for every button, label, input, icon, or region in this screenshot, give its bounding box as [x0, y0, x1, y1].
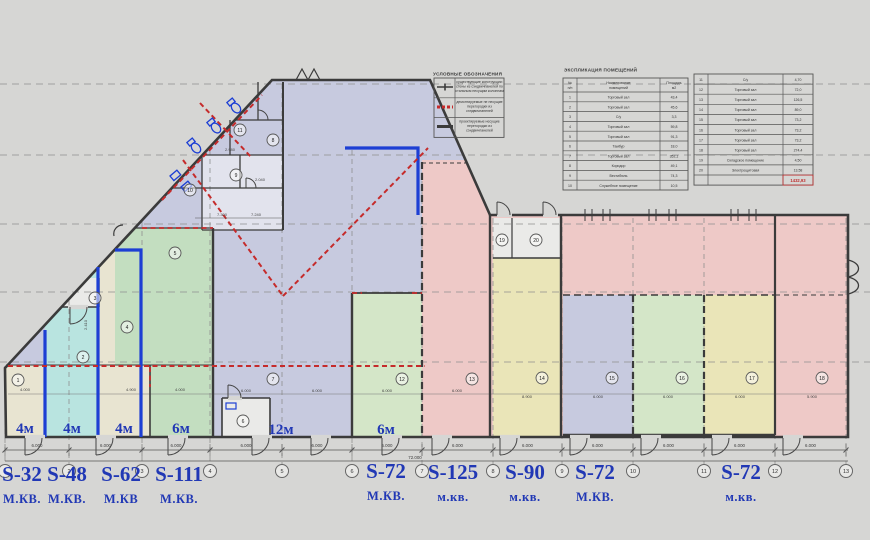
room-number: 12	[399, 377, 405, 383]
room-row-num: 3	[569, 115, 571, 119]
col-header-num: №	[568, 81, 572, 85]
interior-dimension: 6.000	[452, 388, 463, 393]
room-number: 6	[242, 419, 245, 425]
col-header-num: п/п	[568, 86, 573, 90]
room-row-area: 4,50	[795, 159, 802, 163]
room-row-area: 49,1	[671, 164, 678, 168]
bay-dimension: 6.000	[592, 443, 604, 448]
zone-16-green	[633, 295, 704, 435]
zone-13-pink	[422, 160, 493, 437]
room-number: 20	[533, 238, 539, 244]
legend-row-text: сэндвичпанелей	[466, 129, 493, 133]
bay-dimension: 6.000	[452, 443, 464, 448]
interior-dimension: 4.000	[175, 387, 186, 392]
interior-dimension: 6.000	[241, 388, 252, 393]
interior-dimension: 4.000	[20, 387, 31, 392]
room-number: 7	[272, 377, 275, 383]
grid-bubble-number: 8	[491, 469, 494, 475]
unit-area-units: М.КВ.	[576, 490, 614, 504]
col-header-name: помещений	[609, 86, 628, 90]
bay-dimension: 6.000	[241, 443, 253, 448]
interior-dimension: 7.300	[217, 212, 228, 217]
room-row-area: 73,2	[795, 118, 802, 122]
unit-height-label: 4м	[115, 421, 133, 437]
room-number: 11	[237, 128, 242, 134]
unit-area-label: S-48	[47, 462, 87, 486]
total-area: 1432,93	[790, 178, 806, 183]
room-row-area: 73,2	[795, 128, 802, 132]
room-row-area: 126,5	[794, 98, 803, 102]
room-number: 17	[749, 376, 755, 382]
bay-dimension: 6.000	[100, 443, 112, 448]
unit-height-label: 12м	[268, 422, 293, 438]
grid-bubble-number: 6	[350, 469, 353, 475]
room-number: 15	[609, 376, 615, 382]
room-row-name: Складское помещение	[727, 159, 764, 163]
room-number: 14	[539, 376, 545, 382]
room-row-num: 5	[569, 135, 571, 139]
room-number: 1	[17, 378, 20, 384]
room-row-name: Торговый зал	[608, 105, 630, 109]
overall-dimension: 72.000	[408, 455, 422, 460]
interior-dimension: 4.900	[126, 387, 137, 392]
grid-bubble-number: 11	[701, 469, 707, 475]
room-number: 19	[499, 238, 505, 244]
interior-dimension: 2.040	[255, 177, 266, 182]
legend-row-text: перегородки из	[467, 105, 492, 109]
unit-area-label: S-111	[155, 462, 203, 486]
room-row-name: Торговый зал	[735, 88, 757, 92]
room-row-name: Торговый зал	[735, 98, 757, 102]
room-row-num: 17	[699, 138, 703, 142]
room-row-num: 16	[699, 128, 703, 132]
room-cluster	[202, 155, 283, 230]
room-number: 5	[174, 251, 177, 257]
bay-dimension: 6.000	[805, 443, 817, 448]
room-number: 18	[819, 376, 825, 382]
room-row-num: 1	[569, 96, 571, 100]
room-number: 2	[82, 355, 85, 361]
grid-bubble-number: 12	[772, 469, 778, 475]
room-number: 4	[126, 325, 129, 331]
floor-plan-screenshot: 6.0006.0006.0006.0006.0006.0006.0006.000…	[0, 0, 870, 540]
grid-bubble-number: 3	[140, 469, 143, 475]
room-row-area: 72,0	[795, 88, 802, 92]
room-row-name: Торговый зал	[735, 118, 757, 122]
zone-15-lavender	[563, 295, 633, 435]
room-row-num: 9	[569, 174, 571, 178]
room-row-name: Электрощитовая	[732, 169, 760, 173]
room-row-num: 4	[569, 125, 571, 129]
floor-plan-drawing: 6.0006.0006.0006.0006.0006.0006.0006.000…	[0, 0, 870, 540]
bay-dimension: 6.000	[522, 443, 534, 448]
unit-area-units: М.КВ.	[160, 492, 198, 506]
grid-bubble-number: 4	[208, 469, 211, 475]
room-row-name: Коридор	[612, 164, 626, 168]
zone-17-yellow	[704, 295, 775, 435]
unit-area-units: М.КВ	[104, 492, 138, 506]
unit-area-label: S-72	[366, 459, 406, 483]
legend-row-text: существующие конструкции:	[456, 80, 502, 84]
unit-area-label: S-72	[575, 460, 615, 484]
legend-row-text: стены из сэндвичпанелей по	[456, 85, 503, 89]
bay-dimension: 6.000	[312, 443, 324, 448]
room-row-name: Торговый зал	[735, 108, 757, 112]
unit-height-label: 4м	[63, 421, 81, 437]
interior-dimension: 6.000	[593, 394, 604, 399]
room-row-name: Торговый зал	[735, 149, 757, 153]
bay-dimension: 6.000	[382, 443, 394, 448]
room-row-num: 7	[569, 154, 571, 158]
room-row-area: 59,8	[671, 125, 678, 129]
legend-row-text: стальным несущим колоннам	[455, 89, 504, 93]
col-header-area: Площадь	[666, 81, 681, 85]
room-row-area: 91,3	[671, 135, 678, 139]
vertical-dimension: 2.410	[83, 319, 88, 330]
room-row-name: Торговый зал	[735, 128, 757, 132]
room-row-name: Торговый зал	[608, 96, 630, 100]
interior-dimension: 2.980	[225, 147, 236, 152]
room-row-area: 274,4	[794, 149, 803, 153]
room-row-name: Торговый зал	[735, 138, 757, 142]
room-row-name: Вестибюль	[609, 174, 627, 178]
legend-row-text: демонтируемые не несущие	[456, 100, 502, 104]
explication-title: ЭКСПЛИКАЦИЯ ПОМЕЩЕНИЙ	[564, 66, 637, 73]
bay-dimension: 6.000	[734, 443, 746, 448]
room-row-name: Торговый зал	[608, 154, 630, 158]
room-row-num: 2	[569, 105, 571, 109]
room-row-num: 13	[699, 98, 703, 102]
unit-height-label: 6м	[172, 421, 190, 437]
col-header-name: Наименование	[606, 81, 630, 85]
room-row-name: Тамбур	[613, 145, 625, 149]
bay-dimension: 6.000	[32, 443, 44, 448]
zone-14-yellow	[493, 258, 560, 437]
room-row-area: 74,3	[671, 174, 678, 178]
room-row-num: 18	[699, 149, 703, 153]
room-row-area: 352,1	[670, 154, 679, 158]
interior-dimension: 6.000	[735, 394, 746, 399]
room-number: 3	[94, 296, 97, 302]
interior-dimension: 7.240	[251, 212, 262, 217]
room-row-area: 3,3	[672, 115, 677, 119]
room-number: 9	[235, 173, 238, 179]
unit-area-label: S-72	[721, 460, 761, 484]
bay-dimension: 6.000	[663, 443, 675, 448]
room-number: 16	[679, 376, 685, 382]
room-row-area: 73,2	[795, 138, 802, 142]
room-row-num: 6	[569, 145, 571, 149]
grid-bubble-number: 10	[630, 469, 636, 475]
unit-area-units: М.КВ.	[48, 492, 86, 506]
interior-dimension: 8.900	[522, 394, 533, 399]
col-header-area: м2	[672, 86, 676, 90]
unit-area-units: м.кв.	[509, 490, 540, 504]
interior-dimension: 5.900	[807, 394, 818, 399]
unit-area-units: м.кв.	[437, 490, 468, 504]
interior-dimension: 6.000	[382, 388, 393, 393]
grid-bubble-number: 7	[420, 469, 423, 475]
unit-area-units: М.КВ.	[3, 492, 41, 506]
legend-row-text: проектируемые несущие	[459, 120, 499, 124]
room-row-area: 13,58	[794, 169, 803, 173]
unit-area-label: S-90	[505, 460, 545, 484]
room-row-num: 10	[568, 184, 572, 188]
unit-area-units: м.кв.	[725, 490, 756, 504]
room-row-name: С/у	[616, 115, 622, 119]
room-row-area: 4,70	[795, 78, 802, 82]
room-number: 8	[272, 138, 275, 144]
room-number: 13	[469, 377, 475, 383]
room-row-name: С/у	[743, 78, 749, 82]
unit-area-label: S-125	[428, 460, 478, 484]
unit-height-label: 6м	[377, 422, 395, 438]
room-number: 10	[187, 188, 193, 194]
grid-bubble-number: 13	[843, 469, 849, 475]
legend-title: УСЛОВНЫЕ ОБОЗНАЧЕНИЯ	[433, 72, 502, 77]
unit-height-label: 4м	[16, 421, 34, 437]
room-row-area: 89,0	[795, 108, 802, 112]
interior-dimension: 6.000	[663, 394, 674, 399]
room-row-area: 45,6	[671, 105, 678, 109]
grid-bubble-number: 5	[280, 469, 283, 475]
unit-area-label: S-32	[2, 462, 42, 486]
room-row-num: 12	[699, 88, 703, 92]
unit-area-label: S-62	[101, 462, 141, 486]
room-row-num: 11	[699, 78, 703, 82]
room-row-area: 18,0	[671, 145, 678, 149]
bay-dimension: 6.000	[171, 443, 183, 448]
room-row-num: 8	[569, 164, 571, 168]
legend-row-text: сэндвичпанелей	[466, 109, 493, 113]
room-row-num: 20	[699, 169, 703, 173]
room-row-num: 15	[699, 118, 703, 122]
room-row-area: 43,4	[671, 96, 678, 100]
room-row-name: Торговый зал	[608, 135, 630, 139]
room-row-area: 10,5	[671, 184, 678, 188]
grid-bubble-number: 9	[560, 469, 563, 475]
room-row-name: Торговый зал	[608, 125, 630, 129]
room-row-name: Служебное помещение	[599, 184, 637, 188]
unit-area-units: М.КВ.	[367, 489, 405, 503]
room-row-num: 14	[699, 108, 703, 112]
interior-dimension: 6.000	[312, 388, 323, 393]
room-row-num: 19	[699, 159, 703, 163]
legend-row-text: перегородки из	[467, 124, 492, 128]
